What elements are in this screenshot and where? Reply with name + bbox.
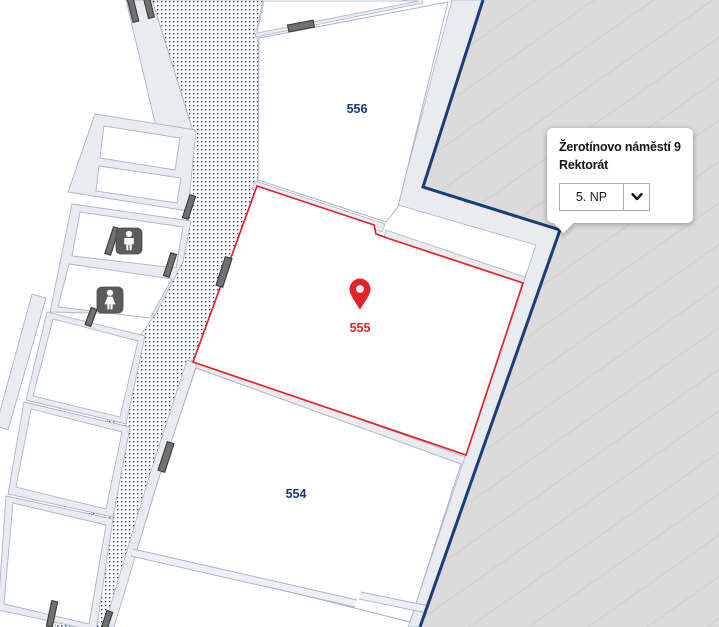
building-address: Žerotínovo náměstí 9: [559, 139, 683, 157]
floor-select-value: 5. NP: [560, 184, 623, 210]
indoor-map-viewer: 556 555 554 Žerotínovo náměstí 9 Rektorá…: [0, 0, 719, 627]
floor-plan-map: 556 555 554: [0, 0, 719, 627]
room-label-555: 555: [350, 321, 371, 335]
chevron-down-icon: [624, 184, 649, 210]
mens-restroom-icon: [116, 228, 142, 254]
building-info-card: Žerotínovo náměstí 9 Rektorát 5. NP: [547, 128, 693, 223]
room-label-554: 554: [286, 487, 307, 501]
womens-restroom-icon: [97, 287, 123, 313]
building-name: Rektorát: [559, 157, 683, 175]
floor-select[interactable]: 5. NP: [559, 183, 650, 211]
room-label-556: 556: [347, 102, 368, 116]
